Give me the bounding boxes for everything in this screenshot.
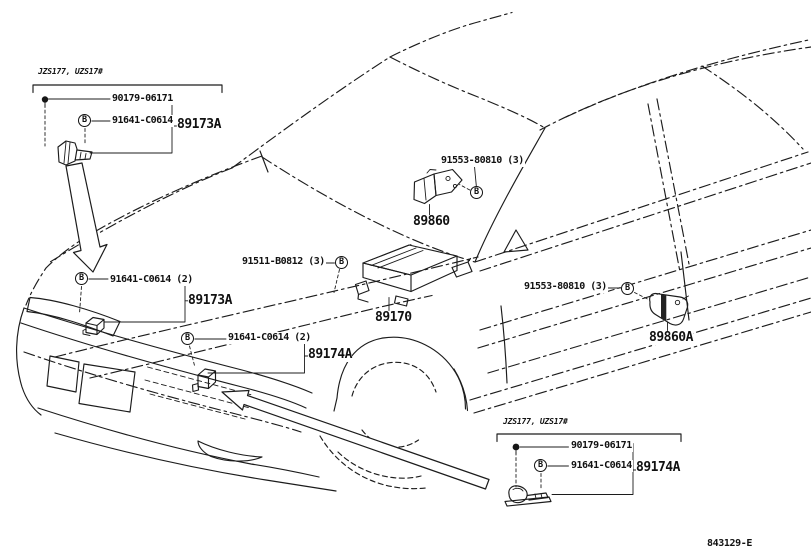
screw-part-number: 91641-C0614 (2) <box>109 274 194 286</box>
location-arrow-bottom <box>222 391 489 490</box>
group-label-89173a: 89173A <box>188 294 232 308</box>
circled-b-marker: B <box>621 282 634 295</box>
screw-part-number: 91553-80810 (3) <box>523 281 608 293</box>
sensor-89860 <box>414 170 462 204</box>
circled-b-marker: B <box>335 256 348 269</box>
airbag-ecu-89170 <box>356 245 473 307</box>
group-label-89173a: 89173A <box>177 118 221 132</box>
bolt-part-number: 90179-06171 <box>570 440 633 452</box>
sensor-bracket-89173-detail <box>58 141 92 165</box>
circled-b-marker: B <box>534 459 547 472</box>
circled-b-marker: B <box>470 186 483 199</box>
bolt-part-number: 90179-06171 <box>111 93 174 105</box>
variant-label: JZS177, UZS17# <box>38 67 103 76</box>
sensor-bracket-89174-detail <box>505 486 551 506</box>
part-label-89170: 89170 <box>375 311 412 325</box>
screw-part-number: 91511-B0812 (3) <box>241 256 326 268</box>
sensor-cube-bumper <box>193 369 216 392</box>
group-label-89174a: 89174A <box>636 461 680 475</box>
variant-label: JZS177, UZS17# <box>503 417 568 426</box>
screw-part-number: 91553-80810 (3) <box>440 155 525 167</box>
sensor-cube-front-fender <box>83 318 104 336</box>
circled-b-marker: B <box>181 332 194 345</box>
car-wireframe <box>17 13 811 492</box>
circled-b-marker: B <box>78 114 91 127</box>
parts-diagram-canvas: JZS177, UZS17# 90179-06171 91641-C0614 B… <box>0 0 811 560</box>
circled-b-marker: B <box>75 272 88 285</box>
screw-part-number: 91641-C0614 (2) <box>227 332 312 344</box>
drawing-number: 843129-E <box>707 538 752 550</box>
group-label-89174a: 89174A <box>308 348 352 362</box>
location-arrow-left <box>66 163 107 272</box>
sensor-89860a <box>650 294 689 325</box>
part-label-89860a: 89860A <box>649 331 693 345</box>
clip-part-number: 91641-C0614 <box>570 460 633 472</box>
clip-part-number: 91641-C0614 <box>111 115 174 127</box>
part-label-89860: 89860 <box>413 215 450 229</box>
